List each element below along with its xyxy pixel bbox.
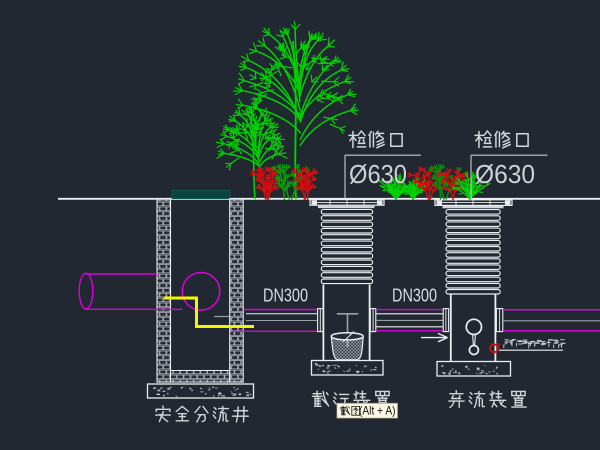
svg-text:(Alt + A): (Alt + A) bbox=[359, 403, 396, 417]
svg-text:DN300: DN300 bbox=[263, 286, 308, 306]
svg-text:DN300: DN300 bbox=[392, 286, 437, 306]
svg-text:Ø630: Ø630 bbox=[349, 159, 407, 189]
svg-text:Ø630: Ø630 bbox=[475, 159, 535, 189]
